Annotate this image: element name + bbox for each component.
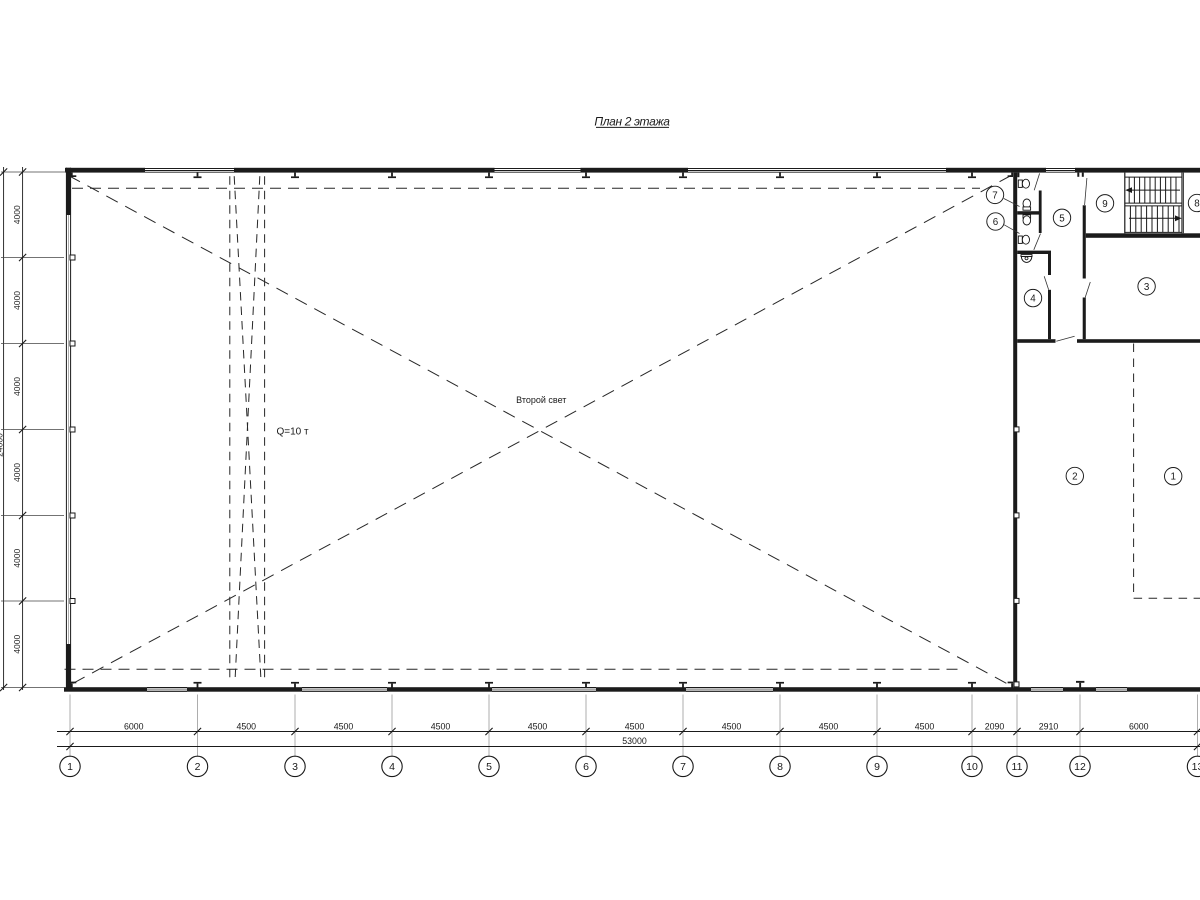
svg-text:2: 2 [195,761,201,773]
svg-text:4500: 4500 [431,722,451,732]
svg-text:4500: 4500 [334,722,354,732]
svg-text:4: 4 [1030,294,1036,305]
svg-text:6000: 6000 [1129,722,1149,732]
svg-text:8: 8 [777,761,783,773]
svg-text:2910: 2910 [1039,722,1059,732]
svg-text:7: 7 [680,761,686,773]
svg-text:4000: 4000 [12,463,22,482]
svg-text:10: 10 [966,761,978,773]
svg-text:12: 12 [1074,761,1086,773]
svg-text:9: 9 [874,761,880,773]
svg-text:5: 5 [486,761,492,773]
svg-text:1: 1 [67,761,73,773]
svg-text:5: 5 [1059,213,1065,224]
svg-text:3: 3 [292,761,298,773]
svg-text:8: 8 [1194,199,1200,210]
svg-text:4500: 4500 [722,722,742,732]
svg-text:Q=10 т: Q=10 т [277,426,310,437]
svg-text:4500: 4500 [528,722,548,732]
svg-text:4000: 4000 [12,291,22,310]
svg-text:4500: 4500 [915,722,935,732]
svg-text:4000: 4000 [12,635,22,654]
svg-text:2090: 2090 [985,722,1005,732]
svg-text:11: 11 [1012,761,1023,773]
svg-text:1: 1 [1170,472,1175,483]
svg-text:6: 6 [583,761,589,773]
svg-text:План 2 этажа: План 2 этажа [594,115,670,129]
svg-text:9: 9 [1102,199,1107,210]
svg-text:13: 13 [1192,761,1200,773]
svg-text:3: 3 [1144,282,1150,293]
svg-text:4000: 4000 [12,205,22,224]
svg-text:4500: 4500 [236,722,256,732]
svg-text:53000: 53000 [622,736,647,746]
svg-text:4000: 4000 [12,549,22,568]
svg-text:4500: 4500 [625,722,645,732]
svg-text:Второй свет: Второй свет [516,395,566,405]
svg-text:6000: 6000 [124,722,144,732]
svg-text:4000: 4000 [12,377,22,396]
svg-text:4500: 4500 [819,722,839,732]
svg-text:2: 2 [1072,472,1077,483]
svg-text:24000: 24000 [0,433,4,457]
svg-text:6: 6 [993,217,999,228]
svg-text:4: 4 [389,761,395,773]
svg-text:7: 7 [992,190,997,201]
